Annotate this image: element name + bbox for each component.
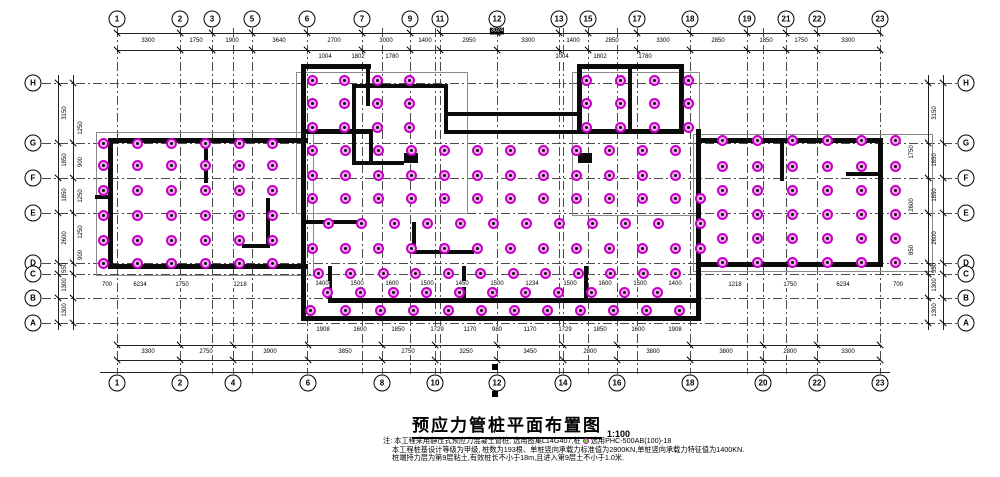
dimension-label: 3300 <box>140 38 155 44</box>
pile-marker <box>581 75 592 86</box>
wall-segment <box>108 138 113 269</box>
pile-marker <box>542 305 553 316</box>
axis-bubble-top-13: 13 <box>551 11 568 28</box>
pile-marker <box>345 268 356 279</box>
axis-bubble-left-B: B <box>25 290 42 307</box>
pile-marker <box>305 305 316 316</box>
drawing-title: 预应力管桩平面布置图 <box>412 411 602 439</box>
pile-marker <box>200 258 211 269</box>
wall-segment <box>352 84 448 88</box>
pile-marker <box>717 233 728 244</box>
wall-segment <box>628 64 632 134</box>
drawing-notes: 注: 本工程采用静压式预应力混凝土管桩; 选用图集L14G407,桩选用PHC-… <box>383 437 744 463</box>
grid-line <box>42 83 957 84</box>
pile-marker <box>856 135 867 146</box>
pile-marker <box>670 268 681 279</box>
pile-marker <box>717 257 728 268</box>
dimension-label: 3800 <box>718 349 733 355</box>
wall-segment <box>328 298 700 303</box>
axis-bubble-bottom-16: 16 <box>609 375 626 392</box>
pile-marker <box>505 193 516 204</box>
pile-marker <box>890 209 901 220</box>
pile-marker <box>378 268 389 279</box>
dimension-label: 1500 <box>349 281 364 287</box>
drawing-title-block: 预应力管桩平面布置图1:100 <box>412 411 630 439</box>
pile-marker <box>339 98 350 109</box>
dimension-label: 1234 <box>524 281 539 287</box>
dimension-label: 6234 <box>835 282 850 288</box>
wall-segment <box>878 138 883 267</box>
pile-marker <box>98 160 109 171</box>
pile-marker <box>586 287 597 298</box>
dimension-label: 1850 <box>592 327 607 333</box>
axis-bubble-bottom-12: 12 <box>489 375 506 392</box>
dimension-label: 3300 <box>840 38 855 44</box>
pile-marker <box>307 170 318 181</box>
pile-marker <box>372 122 383 133</box>
pile-marker <box>166 185 177 196</box>
pile-marker <box>615 122 626 133</box>
axis-bubble-top-7: 7 <box>354 11 371 28</box>
dimension-label: 2850 <box>710 38 725 44</box>
wall-segment <box>697 138 701 188</box>
dimension-label: 3900 <box>262 349 277 355</box>
dimension-label: 1300 <box>62 302 68 317</box>
dimension-label: 1300 <box>932 277 938 292</box>
dimension-label: 1850 <box>932 152 938 167</box>
pile-marker <box>670 243 681 254</box>
pile-marker <box>890 257 901 268</box>
dimension-label: 1500 <box>562 281 577 287</box>
pile-marker <box>339 122 350 133</box>
pile-marker <box>615 75 626 86</box>
axis-bubble-right-H: H <box>958 75 975 92</box>
dimension-label: 1600 <box>597 281 612 287</box>
axis-bubble-top-18: 18 <box>682 11 699 28</box>
pile-marker <box>404 98 415 109</box>
axis-bubble-left-G: G <box>25 135 42 152</box>
pile-marker <box>637 145 648 156</box>
pile-marker <box>752 185 763 196</box>
dimension-label: 3640 <box>271 38 286 44</box>
dimension-label: 1250 <box>78 120 84 135</box>
pile-marker <box>375 305 386 316</box>
dimension-label: 1250 <box>78 224 84 239</box>
dimension-label: 1600 <box>384 281 399 287</box>
pile-marker <box>890 233 901 244</box>
wall-segment <box>242 244 270 248</box>
pile-marker <box>472 193 483 204</box>
dimension-label: 2600 <box>62 230 68 245</box>
axis-bubble-top-12: 12 <box>489 11 506 28</box>
dimension-label: 3300 <box>840 349 855 355</box>
dimension-label: 900 <box>78 249 84 261</box>
pile-marker <box>389 218 400 229</box>
wall-segment <box>369 129 373 165</box>
dimension-label: 700 <box>101 282 113 288</box>
pile-marker <box>717 185 728 196</box>
pile-marker <box>356 218 367 229</box>
pile-marker <box>822 209 833 220</box>
pile-marker <box>323 218 334 229</box>
pile-marker <box>890 135 901 146</box>
pile-marker <box>538 145 549 156</box>
pile-marker <box>200 160 211 171</box>
pile-marker <box>822 161 833 172</box>
pile-marker <box>98 185 109 196</box>
pile-marker <box>132 258 143 269</box>
dimension-label: 1900 <box>224 38 239 44</box>
pile-marker <box>619 287 630 298</box>
pile-marker <box>571 170 582 181</box>
wall-segment <box>780 141 784 181</box>
dimension-label: 1802 <box>592 54 607 60</box>
pile-marker <box>406 170 417 181</box>
dimension-label: 2950 <box>461 38 476 44</box>
dimension-label: 1750 <box>909 144 915 159</box>
pile-marker <box>472 170 483 181</box>
pile-marker <box>509 305 520 316</box>
pile-marker <box>406 145 417 156</box>
dimension-label: 1750 <box>782 282 797 288</box>
axis-bubble-bottom-4: 4 <box>225 375 242 392</box>
dimension-label: 2600 <box>932 230 938 245</box>
pile-marker <box>652 287 663 298</box>
pile-marker <box>307 145 318 156</box>
dimension-label: 1250 <box>78 188 84 203</box>
axis-bubble-bottom-6: 6 <box>300 375 317 392</box>
pile-marker <box>649 75 660 86</box>
dimension-label: 3000 <box>378 38 393 44</box>
pile-marker <box>787 135 798 146</box>
dimension-label: 1780 <box>384 54 399 60</box>
pile-marker <box>372 75 383 86</box>
dimension-label: 2800 <box>782 349 797 355</box>
pile-marker <box>234 160 245 171</box>
highlight-dimension: 3024 <box>490 28 504 35</box>
pile-marker <box>98 235 109 246</box>
pile-marker <box>637 243 648 254</box>
dimension-label: 3150 <box>62 105 68 120</box>
pile-marker <box>615 98 626 109</box>
axis-bubble-top-11: 11 <box>432 11 449 28</box>
wall-segment <box>301 316 701 321</box>
wall-segment <box>352 88 356 165</box>
pile-marker <box>388 287 399 298</box>
axis-bubble-bottom-20: 20 <box>755 375 772 392</box>
pile-marker <box>166 235 177 246</box>
pile-marker <box>472 243 483 254</box>
pile-marker <box>752 135 763 146</box>
pile-marker <box>455 218 466 229</box>
dimension-label: 2600 <box>909 197 915 212</box>
pile-plan-drawing: 3300175019003640270030001400295033001400… <box>0 0 1000 477</box>
dimension-label: 550 <box>932 262 938 274</box>
axis-bubble-left-A: A <box>25 315 42 332</box>
dimension-line <box>100 372 890 373</box>
pile-marker <box>856 233 867 244</box>
pile-marker <box>787 209 798 220</box>
pile-marker <box>508 268 519 279</box>
axis-bubble-bottom-1: 1 <box>109 375 126 392</box>
axis-bubble-left-H: H <box>25 75 42 92</box>
pile-marker <box>752 233 763 244</box>
pile-marker <box>538 193 549 204</box>
pile-marker <box>408 305 419 316</box>
pile-marker <box>406 193 417 204</box>
dimension-label: 1802 <box>350 54 365 60</box>
axis-bubble-top-3: 3 <box>204 11 221 28</box>
pile-marker <box>856 185 867 196</box>
dimension-label: 1729 <box>429 327 444 333</box>
pile-marker <box>554 218 565 229</box>
dimension-line <box>73 75 74 330</box>
pile-marker <box>322 287 333 298</box>
dimension-label: 1004 <box>554 54 569 60</box>
pile-marker <box>472 145 483 156</box>
pile-marker <box>505 243 516 254</box>
wall-segment <box>301 64 306 134</box>
axis-bubble-top-19: 19 <box>739 11 756 28</box>
dimension-label: 2700 <box>326 38 341 44</box>
wall-segment <box>301 129 306 321</box>
pile-marker <box>267 235 278 246</box>
dimension-label: 1300 <box>932 302 938 317</box>
axis-bubble-left-F: F <box>25 170 42 187</box>
dimension-label: 980 <box>491 327 503 333</box>
dimension-label: 3300 <box>140 349 155 355</box>
pile-marker <box>422 218 433 229</box>
axis-bubble-bottom-23: 23 <box>872 375 889 392</box>
pile-marker <box>234 210 245 221</box>
pile-marker <box>98 138 109 149</box>
dimension-line <box>58 75 59 330</box>
dimension-label: 550 <box>62 262 68 274</box>
dimension-label: 1218 <box>232 282 247 288</box>
pile-marker <box>313 268 324 279</box>
dimension-label: 1218 <box>727 282 742 288</box>
pile-marker <box>520 287 531 298</box>
pile-marker <box>604 170 615 181</box>
pile-marker <box>752 257 763 268</box>
dimension-label: 1450 <box>454 281 469 287</box>
wall-segment <box>444 130 584 134</box>
pile-marker <box>787 185 798 196</box>
pile-marker <box>132 138 143 149</box>
pile-marker <box>521 218 532 229</box>
pile-marker <box>822 233 833 244</box>
pile-marker <box>670 193 681 204</box>
dimension-label: 2750 <box>400 349 415 355</box>
pile-marker <box>234 235 245 246</box>
dimension-label: 1750 <box>188 38 203 44</box>
pile-marker <box>581 122 592 133</box>
dimension-label: 2850 <box>604 38 619 44</box>
pile-marker <box>717 161 728 172</box>
axis-bubble-bottom-8: 8 <box>374 375 391 392</box>
pile-marker <box>132 210 143 221</box>
pile-marker <box>787 233 798 244</box>
dimension-label: 3450 <box>522 349 537 355</box>
dimension-label: 1850 <box>758 38 773 44</box>
pile-marker <box>695 218 706 229</box>
pile-marker <box>487 287 498 298</box>
axis-bubble-top-6: 6 <box>299 11 316 28</box>
axis-bubble-bottom-14: 14 <box>555 375 572 392</box>
pile-marker <box>683 75 694 86</box>
axis-bubble-top-15: 15 <box>580 11 597 28</box>
pile-marker <box>267 138 278 149</box>
pile-marker <box>605 268 616 279</box>
dimension-label: 1600 <box>630 327 645 333</box>
pile-marker <box>717 135 728 146</box>
pile-marker <box>307 122 318 133</box>
dimension-label: 3300 <box>520 38 535 44</box>
pile-marker <box>404 75 415 86</box>
pile-marker <box>200 185 211 196</box>
pile-marker <box>505 170 516 181</box>
note-line-3: 桩端持力层为第9层粘土,有效桩长不小于18m,且进入第9层土不小于1.0米. <box>383 454 744 463</box>
pile-marker <box>340 145 351 156</box>
wall-segment <box>846 172 878 176</box>
pile-marker <box>637 170 648 181</box>
pile-marker <box>608 305 619 316</box>
note-text: 桩端持力层为第9层粘土,有效桩长不小于18m,且进入第9层土不小于1.0米. <box>392 453 624 462</box>
pile-marker <box>787 161 798 172</box>
pile-marker <box>166 138 177 149</box>
axis-bubble-top-2: 2 <box>172 11 189 28</box>
pile-marker <box>856 257 867 268</box>
pile-marker <box>641 305 652 316</box>
pile-marker <box>604 145 615 156</box>
pile-marker <box>166 210 177 221</box>
axis-bubble-top-23: 23 <box>872 11 889 28</box>
dimension-label: 2800 <box>582 349 597 355</box>
dimension-label: 1400 <box>314 281 329 287</box>
pile-marker <box>683 122 694 133</box>
pile-marker <box>373 243 384 254</box>
dimension-label: 1850 <box>62 152 68 167</box>
pile-marker <box>571 193 582 204</box>
pile-marker <box>587 218 598 229</box>
axis-bubble-right-C: C <box>958 266 975 283</box>
pile-marker <box>571 243 582 254</box>
pile-marker <box>307 98 318 109</box>
dimension-label: 3800 <box>645 349 660 355</box>
dimension-label: 1850 <box>932 187 938 202</box>
pile-marker <box>752 209 763 220</box>
pile-marker <box>373 170 384 181</box>
pile-marker <box>538 243 549 254</box>
pile-marker <box>421 287 432 298</box>
pile-marker <box>132 185 143 196</box>
axis-bubble-right-G: G <box>958 135 975 152</box>
wall-segment <box>301 64 371 69</box>
dimension-label: 1908 <box>315 327 330 333</box>
axis-bubble-right-F: F <box>958 170 975 187</box>
pile-marker <box>505 145 516 156</box>
pile-marker <box>752 161 763 172</box>
dimension-label: 1400 <box>417 38 432 44</box>
pile-marker <box>410 268 421 279</box>
pile-marker <box>307 193 318 204</box>
dimension-label: 1400 <box>565 38 580 44</box>
pile-marker <box>234 138 245 149</box>
axis-bubble-right-B: B <box>958 290 975 307</box>
pile-marker <box>890 185 901 196</box>
dimension-label: 3250 <box>458 349 473 355</box>
axis-bubble-top-22: 22 <box>809 11 826 28</box>
pile-marker <box>553 287 564 298</box>
pile-marker <box>340 243 351 254</box>
pile-marker <box>267 160 278 171</box>
drawing-sheet: 3300175019003640270030001400295033001400… <box>0 0 1000 477</box>
axis-bubble-right-E: E <box>958 205 975 222</box>
pile-symbol-icon <box>583 438 589 444</box>
pile-marker <box>540 268 551 279</box>
dimension-label: 1908 <box>667 327 682 333</box>
pile-marker <box>649 122 660 133</box>
pile-marker <box>604 243 615 254</box>
pile-marker <box>339 75 350 86</box>
pile-marker <box>890 161 901 172</box>
dimension-label: 700 <box>892 282 904 288</box>
wall-segment <box>444 112 581 116</box>
pile-marker <box>638 268 649 279</box>
wall-segment <box>352 161 404 165</box>
pile-marker <box>98 210 109 221</box>
pile-marker <box>717 209 728 220</box>
dimension-label: 3850 <box>337 349 352 355</box>
dimension-line <box>943 75 944 330</box>
pile-marker <box>637 193 648 204</box>
pile-marker <box>340 193 351 204</box>
pile-marker <box>340 170 351 181</box>
pile-marker <box>670 170 681 181</box>
pile-marker <box>267 185 278 196</box>
pile-marker <box>575 305 586 316</box>
pile-marker <box>581 98 592 109</box>
pile-marker <box>476 305 487 316</box>
pile-marker <box>443 305 454 316</box>
dimension-label: 6234 <box>132 282 147 288</box>
foundation-outline <box>693 134 933 272</box>
pile-marker <box>406 243 417 254</box>
pile-marker <box>475 268 486 279</box>
pile-marker <box>307 75 318 86</box>
dimension-label: 1300 <box>62 277 68 292</box>
axis-bubble-top-17: 17 <box>629 11 646 28</box>
axis-bubble-bottom-2: 2 <box>172 375 189 392</box>
axis-bubble-top-9: 9 <box>402 11 419 28</box>
pile-marker <box>695 243 706 254</box>
dimension-label: 1850 <box>62 187 68 202</box>
axis-bubble-top-21: 21 <box>778 11 795 28</box>
axis-bubble-right-A: A <box>958 315 975 332</box>
pile-marker <box>604 193 615 204</box>
highlight-grip <box>492 391 498 397</box>
pile-marker <box>787 257 798 268</box>
pile-marker <box>439 243 450 254</box>
dimension-label: 2750 <box>198 349 213 355</box>
wall-segment <box>444 112 448 134</box>
pile-marker <box>856 209 867 220</box>
dimension-label: 1500 <box>419 281 434 287</box>
pile-marker <box>670 145 681 156</box>
pile-marker <box>98 258 109 269</box>
dimension-label: 1850 <box>390 327 405 333</box>
pile-marker <box>132 235 143 246</box>
